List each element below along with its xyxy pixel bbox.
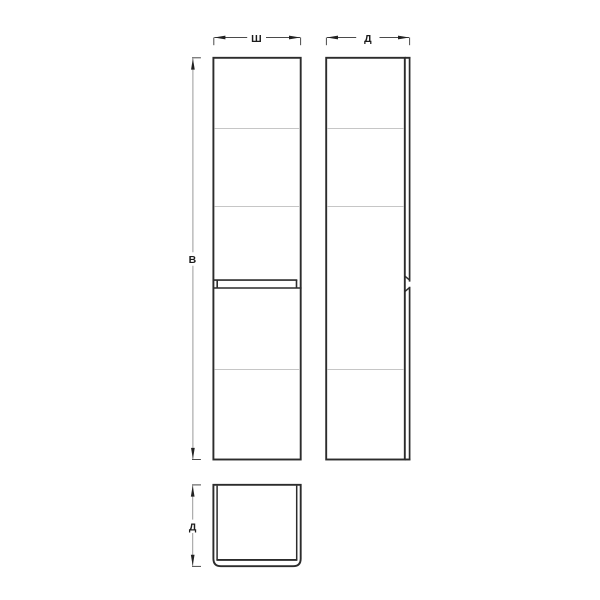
svg-text:В: В [189, 254, 197, 266]
svg-text:Д: Д [189, 521, 197, 533]
svg-text:Ш: Ш [251, 33, 262, 45]
svg-text:Д: Д [364, 33, 372, 45]
